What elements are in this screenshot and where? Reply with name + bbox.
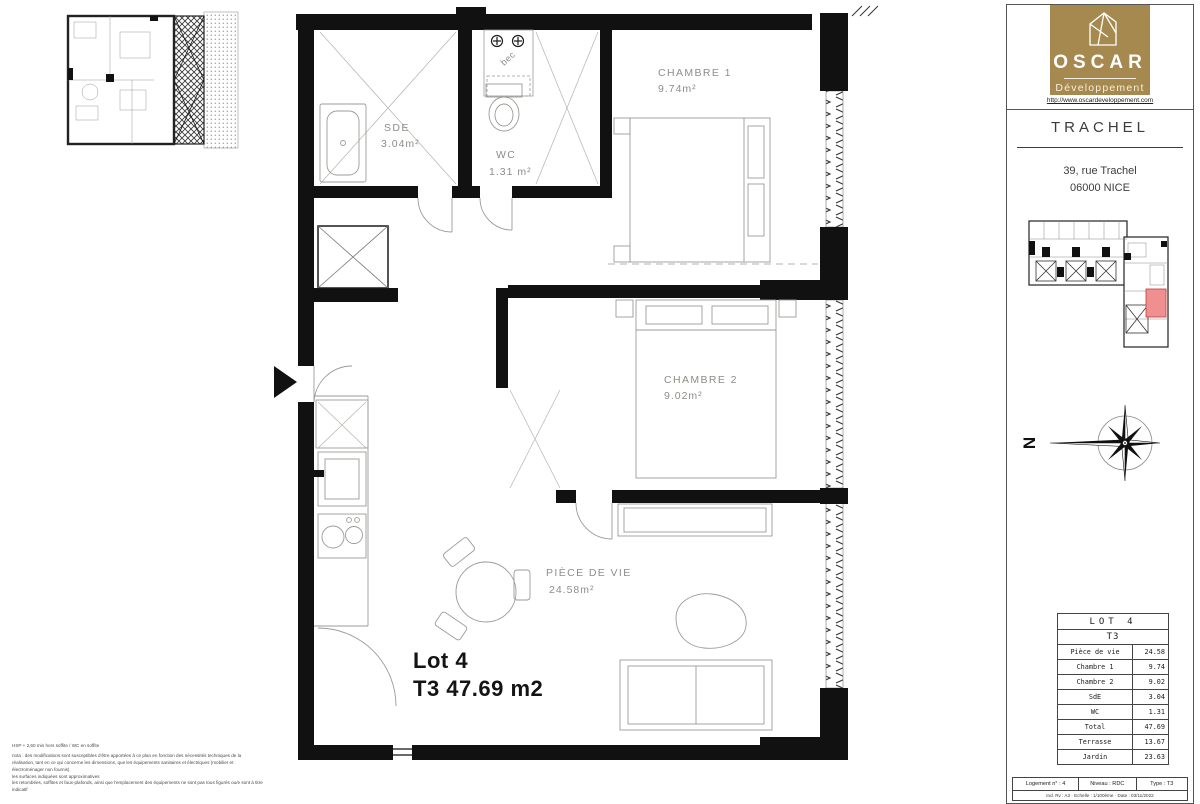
project-address: 39, rue Trachel 06000 NICE <box>1007 163 1193 196</box>
entry-arrow-icon <box>274 366 297 398</box>
bec-label: bec <box>499 49 518 67</box>
sofa <box>620 660 772 730</box>
room-area-sde: 3.04m² <box>381 138 420 150</box>
north-label: N <box>1020 437 1039 449</box>
room-area-chambre1: 9.74m² <box>658 83 697 95</box>
table-row: Terrasse 13.67 <box>1058 734 1168 749</box>
cartouche-meta: Ind. Rv : A3 · Echelle : 1/100ème · Date… <box>1013 790 1187 800</box>
table-row: WC 1.31 <box>1058 704 1168 719</box>
laundry-nook: bec <box>484 30 533 96</box>
room-label-sde: SDE <box>384 122 410 134</box>
kitchen <box>314 396 368 626</box>
cartouche: Logement n° : 4 Niveau : RDC Type : T3 I… <box>1012 777 1188 801</box>
highlighted-lot <box>1146 289 1166 317</box>
sideboard <box>618 504 772 536</box>
plan-thumbnail <box>62 6 242 152</box>
lot-title: Lot 4 <box>413 648 468 673</box>
room-label-chambre1: CHAMBRE 1 <box>658 67 732 79</box>
house-icon <box>1078 9 1122 47</box>
lot-number: Logement n° : 4 <box>1013 778 1079 790</box>
table-row: Total 47.69 <box>1058 719 1168 734</box>
terrace-glazing <box>826 91 843 688</box>
room-area-piece-de-vie: 24.58m² <box>549 584 595 596</box>
table-row: Pièce de vie 24.58 <box>1058 644 1168 659</box>
dining-table <box>434 536 530 641</box>
thumb-terrace <box>174 16 204 144</box>
room-label-chambre2: CHAMBRE 2 <box>664 374 738 386</box>
corner-ticks <box>852 6 878 16</box>
table-row: SdE 3.04 <box>1058 689 1168 704</box>
toilet <box>486 84 522 131</box>
table-row: Chambre 1 9.74 <box>1058 659 1168 674</box>
address-line2: 06000 NICE <box>1007 180 1193 197</box>
section-divider <box>1007 109 1193 110</box>
logo-tagline: Développement <box>1050 82 1150 94</box>
bed-chambre2 <box>616 300 796 478</box>
room-label-piece-de-vie: PIÈCE DE VIE <box>546 566 632 579</box>
room-area-wc: 1.31 m² <box>489 166 532 178</box>
technical-duct <box>318 226 388 288</box>
thumb-garden <box>204 12 238 148</box>
shower <box>320 104 366 182</box>
room-area-chambre2: 9.02m² <box>664 390 703 402</box>
developer-logo: OSCAR Développement <box>1050 5 1150 95</box>
title-divider <box>1017 147 1183 148</box>
surfaces-table-subtitle: T3 <box>1058 629 1168 644</box>
level: Niveau : RDC <box>1079 778 1136 790</box>
rug <box>676 594 746 649</box>
logo-divider <box>1064 78 1136 79</box>
project-title: TRACHEL <box>1007 119 1193 136</box>
site-key-plan <box>1024 213 1176 359</box>
title-block-sidebar: OSCAR Développement http://www.oscardeve… <box>1006 4 1194 804</box>
notes-para1: nota : des modifications sont susceptibl… <box>12 753 264 774</box>
surfaces-table: LOT 4 T3 Pièce de vie 24.58 Chambre 1 9.… <box>1057 613 1169 765</box>
bed-chambre1 <box>614 118 770 262</box>
type: Type : T3 <box>1137 778 1187 790</box>
table-row: Jardin 23.63 <box>1058 749 1168 764</box>
notes-para3: les retombées, soffites et faux-plafonds… <box>12 780 264 794</box>
bottom-window <box>393 749 412 755</box>
developer-url-link[interactable]: http://www.oscardeveloppement.com <box>1007 97 1193 104</box>
room-label-wc: WC <box>496 149 516 161</box>
plan-notes: HSP + 2,60 min hors soffite / WC en soff… <box>12 743 264 794</box>
notes-para2: les surfaces indiquées sont approximativ… <box>12 774 264 781</box>
entry-opening <box>298 366 314 402</box>
surfaces-table-title: LOT 4 <box>1058 614 1168 629</box>
address-line1: 39, rue Trachel <box>1007 163 1193 180</box>
notes-line1: HSP + 2,60 min hors soffite / WC en soff… <box>12 743 264 750</box>
logo-name: OSCAR <box>1050 52 1150 74</box>
table-row: Chambre 2 9.02 <box>1058 674 1168 689</box>
compass-rose-icon: N <box>1015 395 1185 491</box>
lot-area: T3 47.69 m2 <box>413 676 543 701</box>
